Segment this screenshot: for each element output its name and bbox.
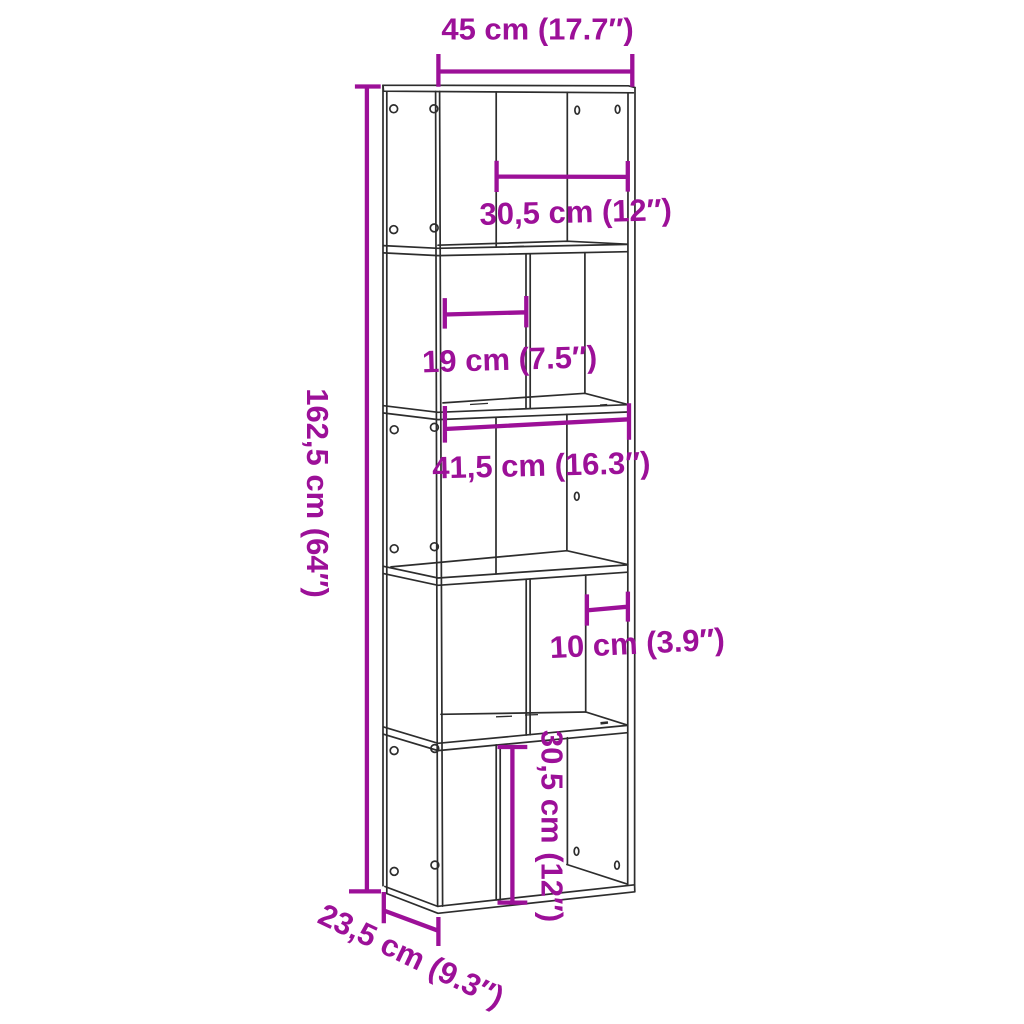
svg-text:45 cm (17.7″): 45 cm (17.7″) [441,12,633,47]
svg-text:10 cm (3.9″): 10 cm (3.9″) [549,622,726,666]
svg-text:41,5 cm (16.3″): 41,5 cm (16.3″) [432,445,651,485]
svg-text:30,5 cm (12″): 30,5 cm (12″) [479,192,672,232]
svg-text:23,5 cm (9.3″): 23,5 cm (9.3″) [313,897,509,1015]
svg-text:162,5 cm (64″): 162,5 cm (64″) [300,388,335,598]
svg-text:19 cm (7.5″): 19 cm (7.5″) [422,339,598,379]
svg-text:30,5 cm (12″): 30,5 cm (12″) [535,730,570,922]
